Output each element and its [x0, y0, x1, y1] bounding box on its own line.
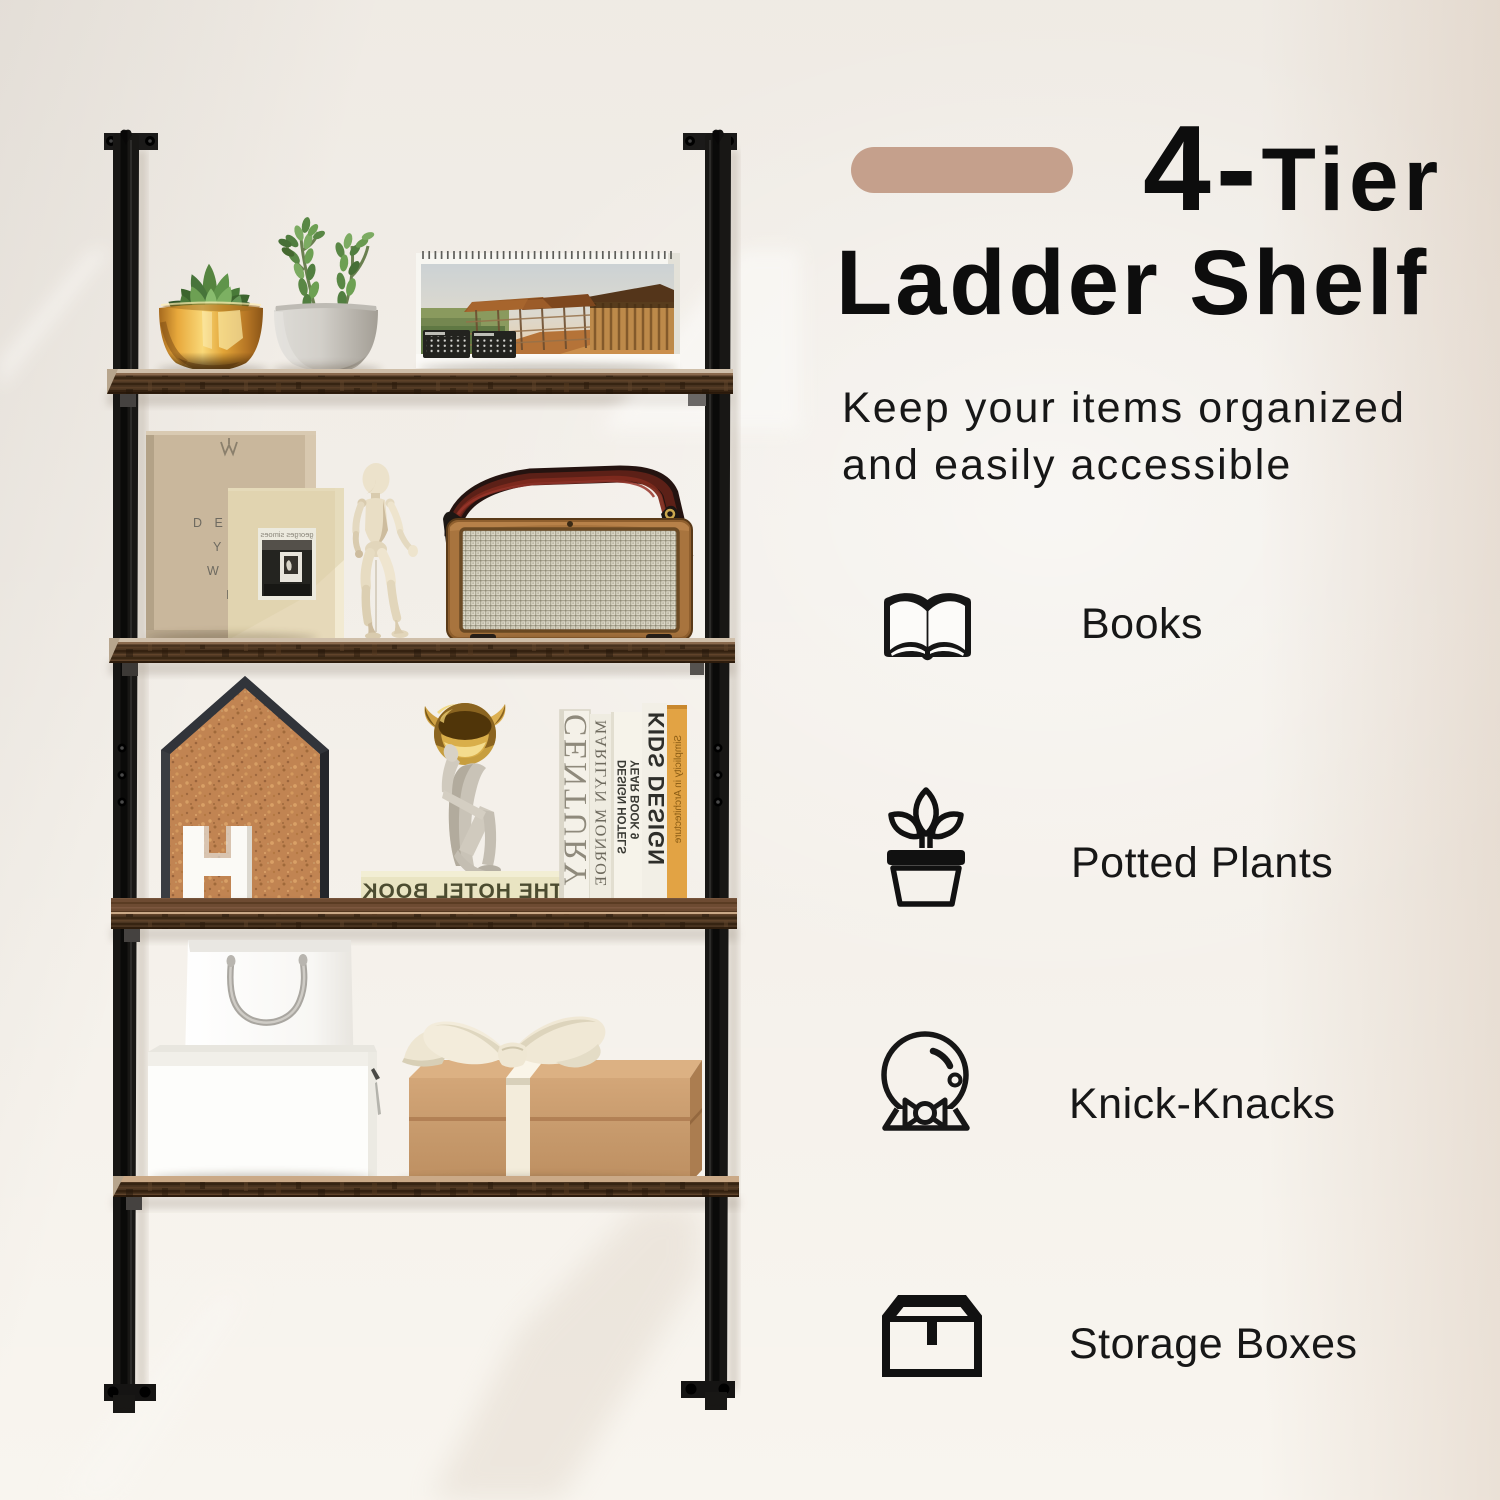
svg-text:Simplicity in Architecture: Simplicity in Architecture	[673, 735, 684, 844]
svg-text:KIDS DESIGN: KIDS DESIGN	[644, 712, 669, 866]
svg-text:georges simoes: georges simoes	[260, 530, 313, 539]
svg-text:CENTURY: CENTURY	[558, 714, 594, 889]
svg-text:YEAR BOOK 9: YEAR BOOK 9	[630, 760, 642, 839]
svg-text:DESIGN HOTELS: DESIGN HOTELS	[617, 760, 629, 854]
svg-text:MARILYN MONROE: MARILYN MONROE	[593, 720, 610, 887]
